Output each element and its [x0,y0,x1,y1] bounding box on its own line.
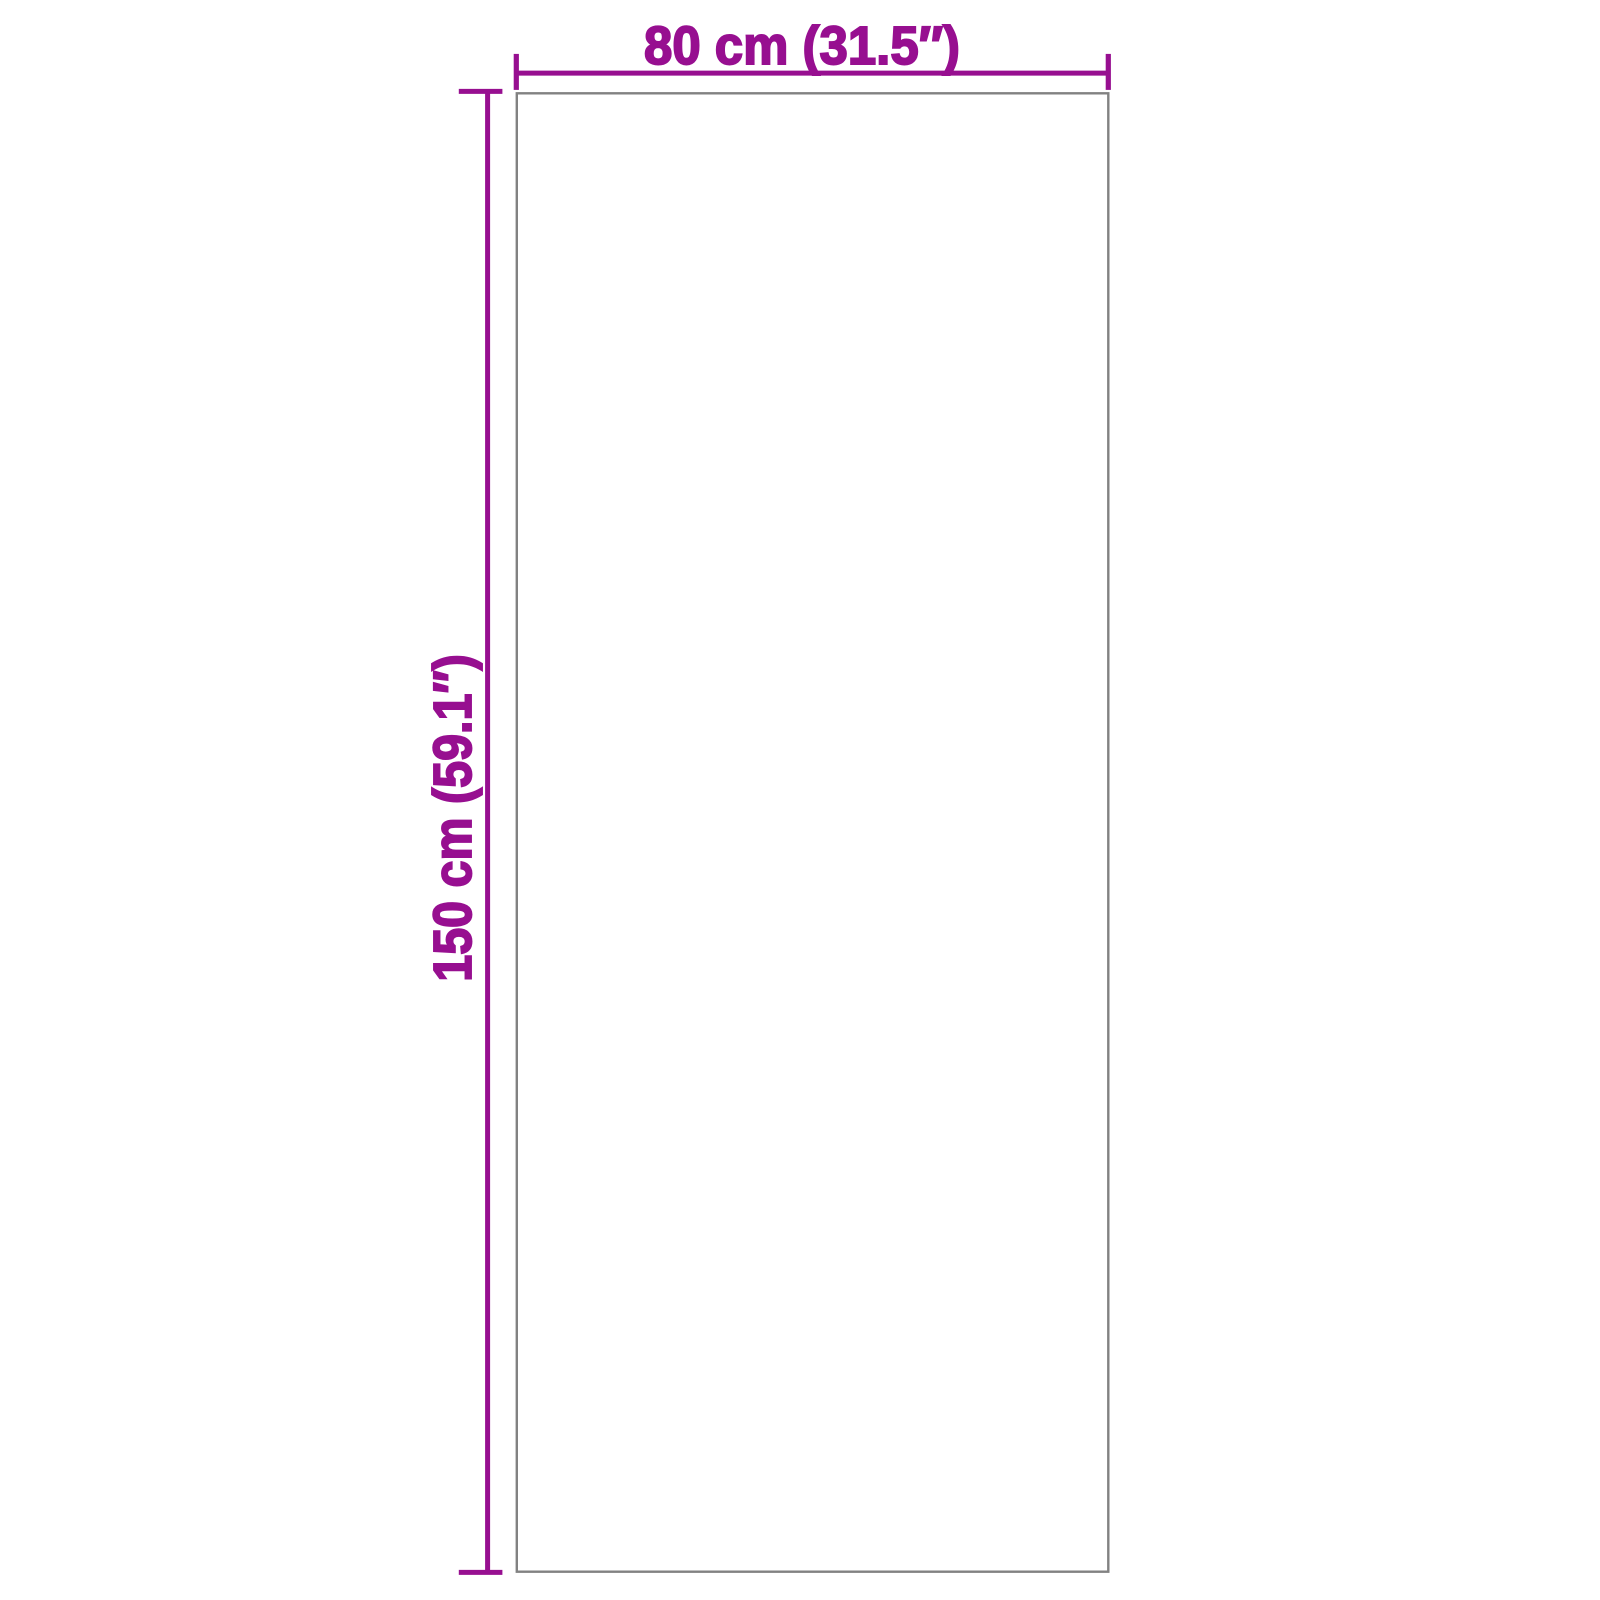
svg-text:80 cm (31.5″): 80 cm (31.5″) [644,17,960,76]
svg-text:150 cm (59.1″): 150 cm (59.1″) [424,654,483,982]
